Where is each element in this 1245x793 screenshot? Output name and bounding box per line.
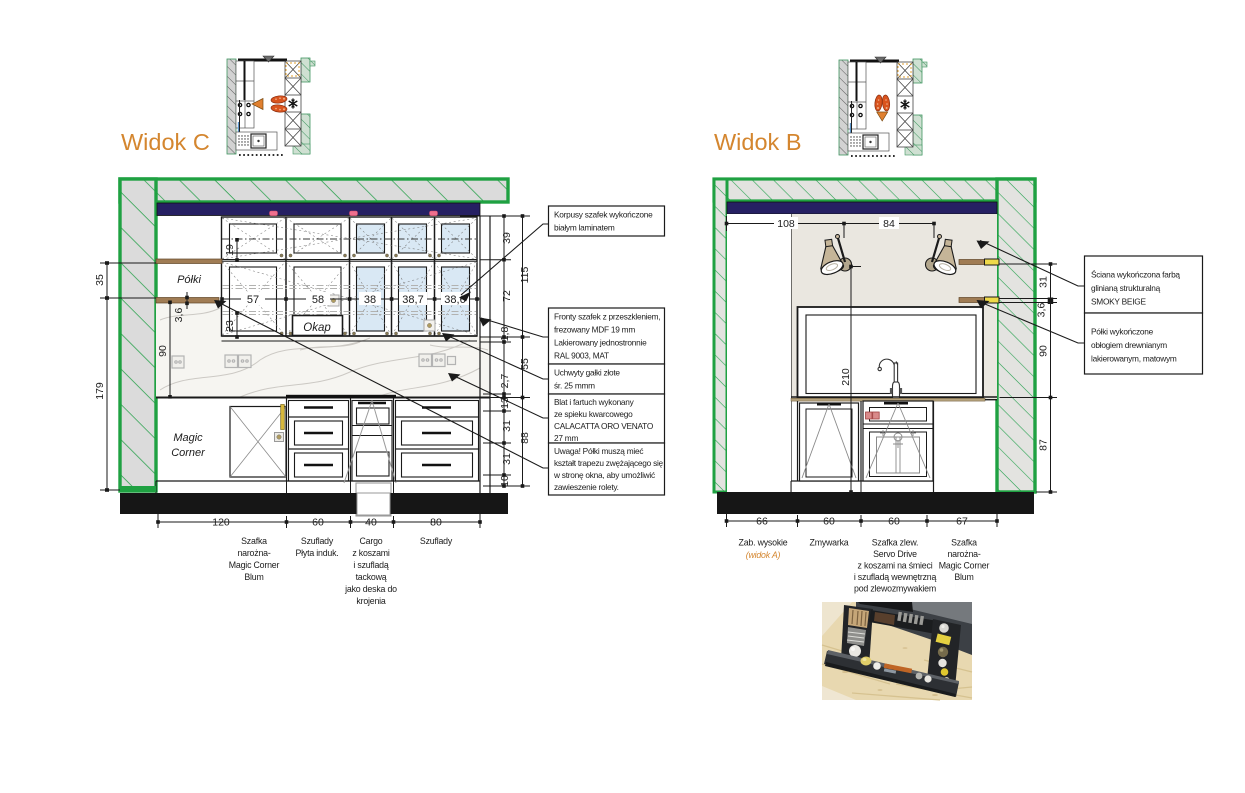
svg-text:Widok C: Widok C xyxy=(121,129,210,155)
svg-text:z koszami na śmieci: z koszami na śmieci xyxy=(858,561,933,571)
svg-text:tackową: tackową xyxy=(356,572,387,582)
svg-text:Uwaga! Półki muszą mieć: Uwaga! Półki muszą mieć xyxy=(554,446,643,456)
svg-text:31: 31 xyxy=(1038,276,1050,288)
svg-text:SMOKY BEIGE: SMOKY BEIGE xyxy=(1091,297,1146,307)
svg-text:87: 87 xyxy=(1038,439,1050,451)
svg-text:Lakierowany jednostronnie: Lakierowany jednostronnie xyxy=(554,338,647,348)
svg-text:88: 88 xyxy=(519,432,531,444)
svg-text:55: 55 xyxy=(519,358,531,370)
svg-text:Servo Drive: Servo Drive xyxy=(873,549,917,559)
svg-text:i szufladą wewnętrzną: i szufladą wewnętrzną xyxy=(854,572,937,582)
svg-text:23: 23 xyxy=(224,320,236,332)
svg-text:19: 19 xyxy=(224,244,236,256)
svg-text:Fronty szafek z przeszkleniem,: Fronty szafek z przeszkleniem, xyxy=(554,312,660,322)
svg-text:białym laminatem: białym laminatem xyxy=(554,223,615,233)
svg-text:Szuflady: Szuflady xyxy=(301,536,334,546)
svg-text:Cargo: Cargo xyxy=(360,536,383,546)
svg-text:Blat i fartuch wykonany: Blat i fartuch wykonany xyxy=(554,397,635,407)
svg-text:Półki: Półki xyxy=(177,274,201,286)
svg-text:115: 115 xyxy=(519,266,531,283)
svg-text:Zab. wysokie: Zab. wysokie xyxy=(739,538,788,548)
svg-text:Okap: Okap xyxy=(303,322,331,334)
svg-text:Blum: Blum xyxy=(954,572,973,582)
svg-text:84: 84 xyxy=(883,218,895,230)
svg-text:35: 35 xyxy=(94,274,106,286)
svg-text:Ściana wykończona farbą: Ściana wykończona farbą xyxy=(1091,269,1180,280)
svg-text:38: 38 xyxy=(364,294,376,306)
svg-text:Corner: Corner xyxy=(171,447,206,459)
svg-text:(widok A): (widok A) xyxy=(746,550,781,560)
svg-text:Zmywarka: Zmywarka xyxy=(810,538,849,548)
svg-text:72: 72 xyxy=(501,290,513,302)
svg-text:zawieszenie rolety.: zawieszenie rolety. xyxy=(554,482,619,492)
svg-text:2,7: 2,7 xyxy=(499,374,511,389)
svg-text:narożna-: narożna- xyxy=(237,548,270,558)
svg-text:31: 31 xyxy=(501,420,513,432)
svg-text:108: 108 xyxy=(777,218,795,230)
svg-text:z koszami: z koszami xyxy=(352,548,390,558)
svg-text:CALACATTA ORO VENATO: CALACATTA ORO VENATO xyxy=(554,421,654,431)
svg-text:179: 179 xyxy=(94,382,106,400)
svg-text:1,8: 1,8 xyxy=(499,327,511,342)
svg-text:śr. 25 mmm: śr. 25 mmm xyxy=(554,381,595,391)
svg-text:80: 80 xyxy=(430,517,442,529)
svg-text:27 mm: 27 mm xyxy=(554,433,578,443)
svg-text:i szufladą: i szufladą xyxy=(353,560,388,570)
svg-text:40: 40 xyxy=(365,517,377,529)
svg-text:Szafka: Szafka xyxy=(241,536,267,546)
svg-text:Magic: Magic xyxy=(173,432,203,444)
svg-text:120: 120 xyxy=(212,517,230,529)
svg-text:Blum: Blum xyxy=(244,572,263,582)
svg-text:210: 210 xyxy=(840,368,852,386)
svg-text:67: 67 xyxy=(956,516,968,528)
svg-text:narożna-: narożna- xyxy=(947,549,980,559)
svg-text:Magic Corner: Magic Corner xyxy=(229,560,280,570)
svg-text:Widok B: Widok B xyxy=(714,129,802,155)
svg-text:3,6: 3,6 xyxy=(173,308,185,323)
svg-text:Magic Corner: Magic Corner xyxy=(939,561,990,571)
svg-text:60: 60 xyxy=(312,517,324,529)
svg-text:10: 10 xyxy=(499,475,511,487)
svg-text:Uchwyty gałki złote: Uchwyty gałki złote xyxy=(554,368,620,378)
svg-text:57: 57 xyxy=(247,294,259,306)
svg-text:38,7: 38,7 xyxy=(402,294,423,306)
svg-text:Szuflady: Szuflady xyxy=(420,536,453,546)
svg-text:58: 58 xyxy=(312,294,324,306)
svg-text:13: 13 xyxy=(499,397,511,409)
svg-text:Płyta induk.: Płyta induk. xyxy=(295,548,338,558)
svg-text:31: 31 xyxy=(501,453,513,465)
svg-text:jako deska do: jako deska do xyxy=(344,584,397,594)
svg-text:glinianą strukturalną: glinianą strukturalną xyxy=(1091,283,1161,293)
svg-text:pod zlewozmywakiem: pod zlewozmywakiem xyxy=(854,584,936,594)
svg-text:frezowany MDF 19 mm: frezowany MDF 19 mm xyxy=(554,325,635,335)
svg-text:RAL 9003, MAT: RAL 9003, MAT xyxy=(554,351,609,361)
svg-text:lakierowanym, matowym: lakierowanym, matowym xyxy=(1091,354,1177,364)
svg-text:3,6: 3,6 xyxy=(1036,303,1048,318)
svg-text:kształt trapezu zwężającego si: kształt trapezu zwężającego się xyxy=(554,458,664,468)
svg-text:90: 90 xyxy=(157,345,169,357)
svg-text:60: 60 xyxy=(888,516,900,528)
svg-text:Półki wykończone: Półki wykończone xyxy=(1091,327,1154,337)
svg-text:Szafka: Szafka xyxy=(951,538,977,548)
svg-text:w stronę okna, aby umożliwić: w stronę okna, aby umożliwić xyxy=(553,470,655,480)
svg-text:Korpusy szafek wykończone: Korpusy szafek wykończone xyxy=(554,210,653,220)
svg-text:krojenia: krojenia xyxy=(356,596,386,606)
svg-text:ze spieku kwarcowego: ze spieku kwarcowego xyxy=(554,409,633,419)
svg-text:66: 66 xyxy=(756,516,768,528)
svg-text:90: 90 xyxy=(1038,345,1050,357)
svg-text:Szafka zlew.: Szafka zlew. xyxy=(872,538,919,548)
svg-text:60: 60 xyxy=(823,516,835,528)
svg-text:obłogiem drewnianym: obłogiem drewnianym xyxy=(1091,340,1167,350)
svg-text:39: 39 xyxy=(501,232,513,244)
